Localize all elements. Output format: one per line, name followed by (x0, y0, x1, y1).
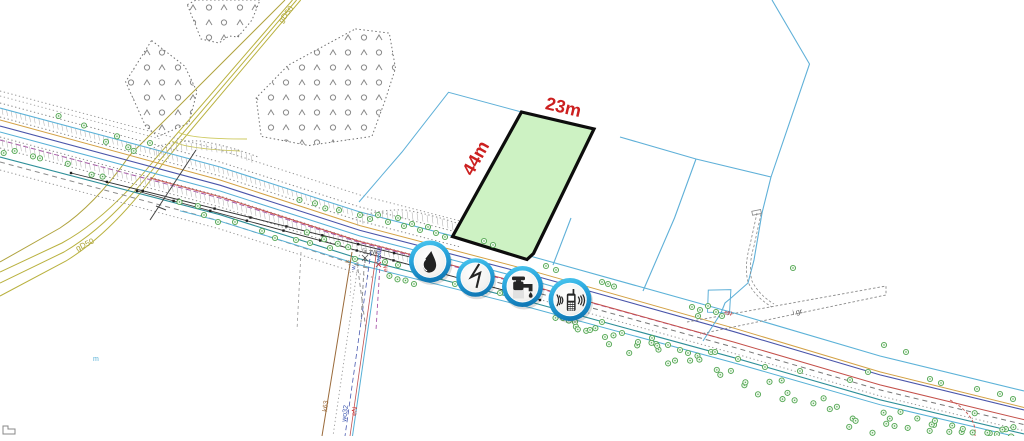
svg-text:23m: 23m (544, 93, 584, 121)
svg-text:k63: k63 (322, 400, 330, 412)
svg-text:gD50: gD50 (74, 236, 96, 253)
svg-text:w: w (351, 265, 358, 272)
svg-text:gD50: gD50 (277, 4, 296, 25)
svg-text:eN: eN (351, 407, 359, 417)
svg-text:wo32: wo32 (341, 405, 350, 424)
svg-text:m: m (93, 356, 99, 363)
svg-text:eN: eN (383, 264, 390, 272)
svg-text:i gr.: i gr. (792, 308, 804, 317)
